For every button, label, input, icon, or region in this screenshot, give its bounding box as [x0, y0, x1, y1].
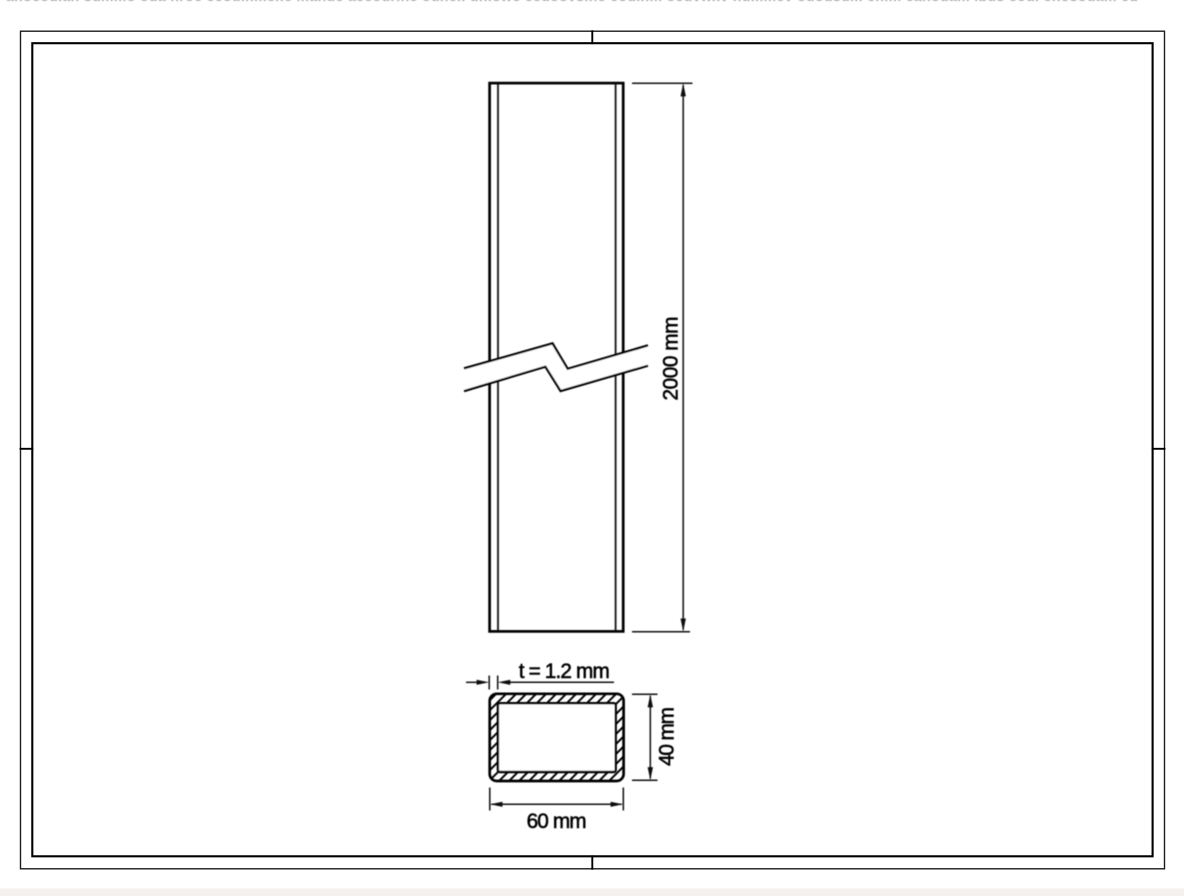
- svg-text:40 mm: 40 mm: [655, 707, 678, 766]
- svg-text:60 mm: 60 mm: [527, 810, 587, 833]
- svg-text:2000 mm: 2000 mm: [659, 317, 682, 401]
- svg-text:anoeouian summo oua nroc ecoui: anoeouian summo oua nroc ecouinmenc manu…: [6, 0, 1138, 4]
- svg-text:t = 1.2 mm: t = 1.2 mm: [519, 660, 610, 683]
